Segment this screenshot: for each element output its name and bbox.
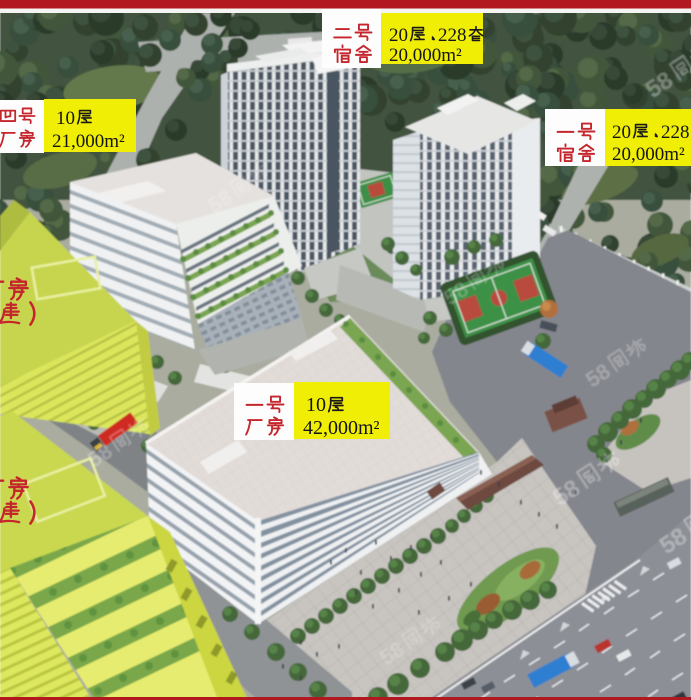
svg-text:10: 10 bbox=[306, 394, 326, 416]
svg-text:20: 20 bbox=[389, 25, 408, 46]
svg-text:20: 20 bbox=[612, 122, 631, 143]
svg-text:20,000m²: 20,000m² bbox=[612, 144, 685, 165]
svg-text:21,000m²: 21,000m² bbox=[52, 131, 125, 152]
svg-text:228: 228 bbox=[661, 122, 690, 143]
svg-text:228: 228 bbox=[438, 25, 467, 46]
svg-text:10: 10 bbox=[56, 108, 75, 129]
svg-text:20,000m²: 20,000m² bbox=[389, 45, 462, 66]
svg-text:42,000m²: 42,000m² bbox=[303, 417, 380, 439]
